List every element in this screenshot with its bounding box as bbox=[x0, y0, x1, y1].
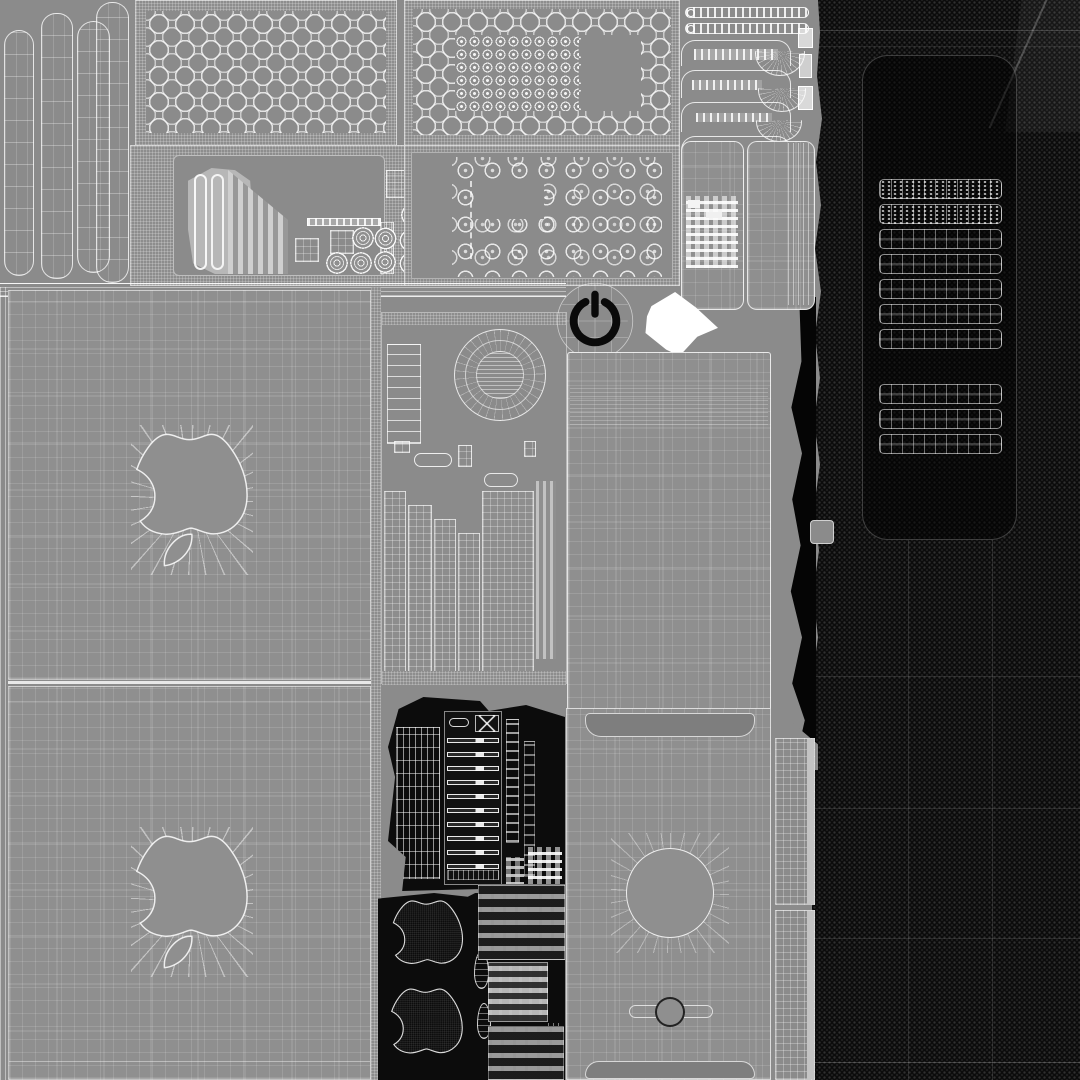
pcb-capsule bbox=[414, 453, 452, 467]
fan-housing-panel bbox=[381, 312, 567, 684]
rear-grid-h4 bbox=[812, 1062, 1080, 1063]
bracket-frame-ticks-2 bbox=[692, 80, 762, 90]
vent-slot-row bbox=[879, 329, 1002, 349]
bracket-stack bbox=[679, 2, 816, 142]
psu-inner bbox=[173, 155, 385, 276]
seam-line-bottom bbox=[9, 1061, 370, 1062]
fan-arc-segment-1 bbox=[755, 30, 805, 76]
vent-slot-row bbox=[879, 434, 1002, 454]
psu-block-c bbox=[295, 238, 319, 262]
vent-strip-light-edge-2 bbox=[807, 911, 814, 1079]
pcie-x-brace bbox=[475, 715, 499, 732]
fan-hole-plain bbox=[626, 848, 714, 938]
pcb-chip-2 bbox=[458, 445, 472, 467]
step-col-4 bbox=[458, 533, 480, 675]
psu-coil-6 bbox=[350, 252, 372, 274]
vent-slot-row bbox=[879, 384, 1002, 404]
rear-panel-black bbox=[812, 0, 1080, 1080]
vent-slot-row bbox=[879, 229, 1002, 249]
rear-grid-h2 bbox=[812, 808, 1080, 809]
apple-logo-wire-1 bbox=[384, 895, 472, 989]
pcie-slot-bar bbox=[447, 836, 499, 841]
fan-screws-panel bbox=[404, 145, 680, 286]
power-button-area bbox=[548, 280, 728, 362]
pcie-slot-bar bbox=[447, 766, 499, 771]
vent-strip-2 bbox=[775, 910, 815, 1080]
pcie-slot-panel bbox=[444, 711, 502, 885]
io-panel-dense-band bbox=[570, 385, 768, 425]
vent-slot-row bbox=[879, 179, 1002, 199]
rear-grid-h1 bbox=[812, 676, 1080, 677]
grille-panel-top-left bbox=[135, 0, 397, 146]
psu-step-bars bbox=[228, 170, 288, 274]
grille-holes-field bbox=[146, 11, 386, 133]
step-col-2 bbox=[408, 505, 432, 675]
pcie-slot-bar bbox=[447, 864, 499, 869]
scatter-dashed-line bbox=[470, 181, 472, 259]
light-strip-column bbox=[536, 481, 556, 659]
psu-coil-3 bbox=[374, 227, 397, 250]
pcie-slot-bars bbox=[445, 738, 501, 878]
pcie-right-column-1 bbox=[506, 719, 519, 843]
power-icon bbox=[554, 280, 636, 362]
psu-long-bar bbox=[307, 218, 381, 226]
pcie-slot-bar bbox=[447, 822, 499, 827]
pcie-capsule bbox=[449, 718, 469, 727]
rear-grid-h3 bbox=[812, 938, 1080, 939]
step-col-3 bbox=[434, 519, 456, 675]
trim-strip-1 bbox=[4, 30, 34, 276]
regulatory-white-chip-1 bbox=[688, 200, 700, 208]
step-col-1 bbox=[384, 491, 406, 675]
regulatory-white-chip-2 bbox=[706, 212, 722, 218]
vent-strip-1 bbox=[775, 738, 815, 905]
pcie-slot-bar bbox=[447, 780, 499, 785]
psu-coil-7 bbox=[373, 250, 397, 274]
vent-column bbox=[862, 55, 1017, 540]
pcb-chip-3 bbox=[524, 441, 536, 457]
left-edge-strip bbox=[0, 287, 8, 1080]
bracket-bar-2 bbox=[685, 23, 809, 34]
vent-strip-light-edge-1 bbox=[807, 739, 814, 904]
pcie-left-column bbox=[396, 727, 440, 879]
white-highlight-blob bbox=[644, 292, 718, 356]
psu-coil-capsule-2 bbox=[211, 174, 224, 270]
fan-circle bbox=[454, 329, 546, 421]
caster-wheel bbox=[655, 997, 685, 1027]
bracket-bar-1 bbox=[685, 7, 809, 18]
rear-grid-v2 bbox=[992, 540, 993, 1080]
apple-logo-cutout-upper bbox=[131, 425, 253, 575]
pcie-bottom-strip bbox=[447, 870, 499, 880]
psu-coil-5 bbox=[325, 251, 349, 275]
bottom-side-panel bbox=[566, 708, 771, 1080]
side-panel-uv-lower bbox=[8, 686, 371, 1080]
trim-strip-4 bbox=[96, 2, 129, 283]
vent-rows-bottom bbox=[879, 384, 1002, 454]
scatter-blank-gap bbox=[474, 179, 544, 219]
pcie-slot-bar bbox=[447, 738, 499, 743]
io-ports-cluster-top bbox=[478, 884, 565, 960]
apple-logo-wire-2 bbox=[381, 983, 473, 1079]
io-ports-cluster-mid bbox=[488, 962, 548, 1022]
rear-edge-tab bbox=[810, 520, 834, 544]
fan-panel-bottom-band bbox=[382, 671, 566, 685]
apple-logo-cutout-lower bbox=[131, 827, 253, 977]
vent-slot-row bbox=[879, 304, 1002, 324]
recess-bar-bottom bbox=[585, 1061, 755, 1079]
ladder-rect bbox=[387, 344, 421, 444]
vent-slot-row bbox=[879, 254, 1002, 274]
side-stripe-column bbox=[788, 143, 812, 305]
fan-circle-hub bbox=[476, 351, 524, 399]
psu-panel bbox=[130, 145, 410, 286]
uv-atlas-canvas bbox=[0, 0, 1080, 1080]
vent-slot-row bbox=[879, 204, 1002, 224]
io-ports-cluster-bottom bbox=[488, 1026, 564, 1080]
fan-panel-top-band bbox=[382, 313, 566, 325]
block-columns bbox=[482, 491, 534, 675]
rear-grid-v1 bbox=[908, 540, 909, 1080]
pcie-slot-bar bbox=[447, 808, 499, 813]
bracket-bar-dot-1 bbox=[687, 9, 695, 17]
pcb-capsule-2 bbox=[484, 473, 518, 487]
screw-lattice-block bbox=[455, 35, 579, 111]
vent-rows-top bbox=[879, 179, 1002, 349]
vent-slot-row bbox=[879, 409, 1002, 429]
pcie-slot-bar bbox=[447, 850, 499, 855]
fan-panel-inner bbox=[411, 152, 673, 279]
pcie-slot-bar bbox=[447, 794, 499, 799]
side-panel-uv-upper bbox=[8, 290, 371, 680]
pcb-chip-1 bbox=[394, 441, 410, 453]
vent-slot-row bbox=[879, 279, 1002, 299]
grille-panel-top-right bbox=[404, 0, 680, 146]
io-side-panel bbox=[567, 352, 771, 712]
pcie-slot-bar bbox=[447, 752, 499, 757]
seam-line-mid bbox=[8, 681, 371, 684]
grille-plain-gap bbox=[581, 35, 641, 111]
recess-bar-top bbox=[585, 713, 755, 737]
psu-coil-2 bbox=[352, 227, 374, 249]
pcie-slots-area bbox=[388, 697, 565, 897]
trim-strip-2 bbox=[41, 13, 73, 279]
psu-coil-capsule-1 bbox=[194, 174, 207, 270]
bracket-bar-dot-2 bbox=[687, 25, 695, 33]
